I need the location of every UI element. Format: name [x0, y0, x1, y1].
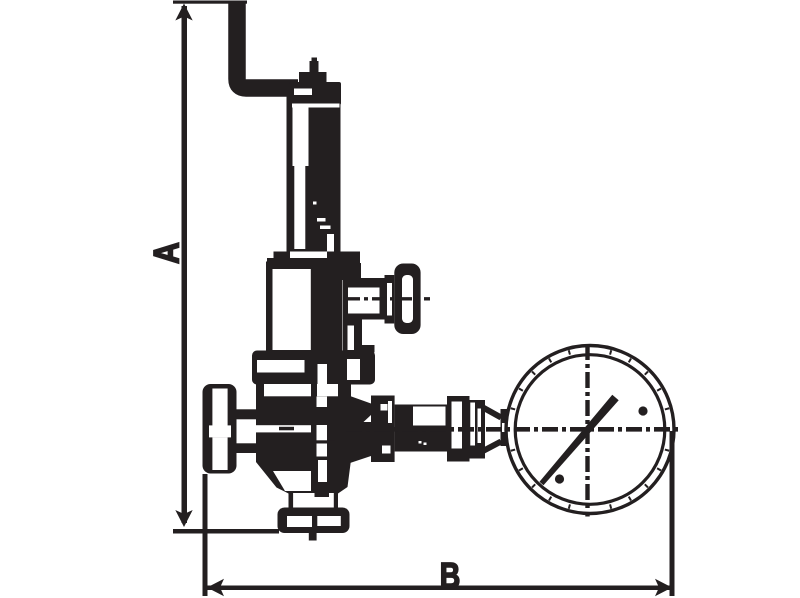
svg-text:B: B [440, 555, 461, 596]
svg-text:A: A [146, 242, 186, 264]
